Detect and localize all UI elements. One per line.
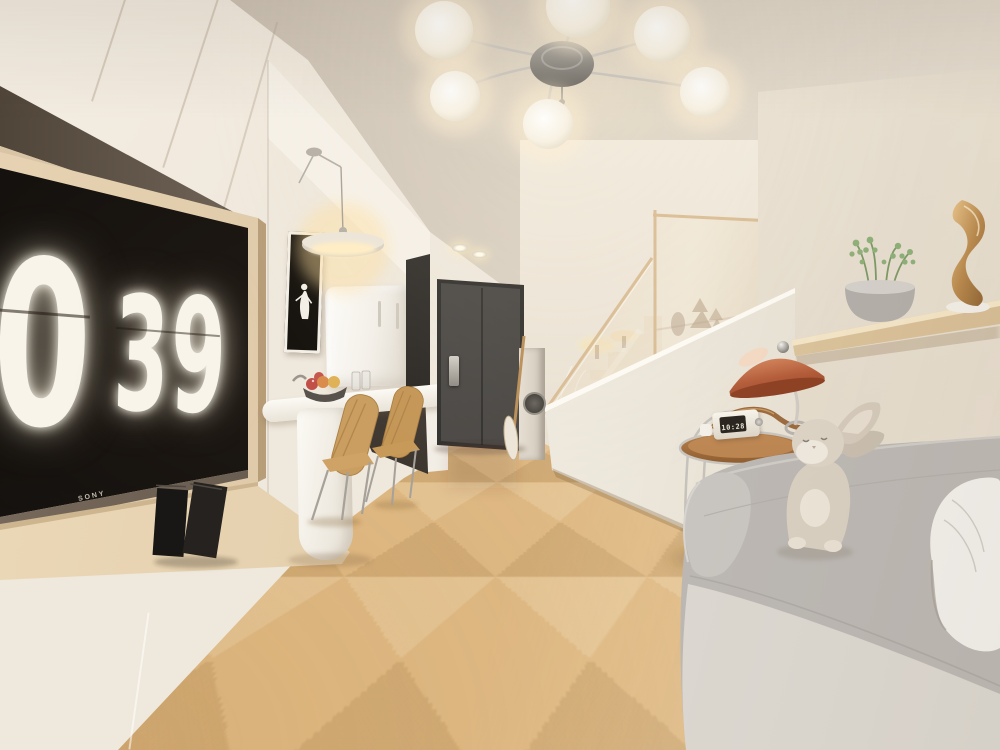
white-mug [700, 424, 712, 436]
console-black-slabs [153, 480, 238, 568]
apartment-interior-scene: 0 39 SONY 10:28 [0, 0, 1000, 750]
gold-sculpture [946, 200, 990, 313]
tv-flip-clock-minutes: 39 [112, 276, 230, 437]
pendant-lamp [297, 148, 389, 295]
dining-chair-front [312, 391, 382, 520]
side-table-flip-clock: 10:28 [712, 409, 760, 440]
leaning-oar [502, 336, 524, 461]
flip-clock-time: 10:28 [721, 422, 745, 432]
flip-clock-display: 10:28 [719, 415, 746, 433]
succulent-pot [845, 237, 915, 322]
globe-chandelier [401, 0, 744, 163]
faucet [293, 376, 306, 381]
glass-cup [362, 371, 370, 389]
glass-cup [352, 372, 360, 390]
tv-flip-clock-hour: 0 [0, 230, 94, 460]
